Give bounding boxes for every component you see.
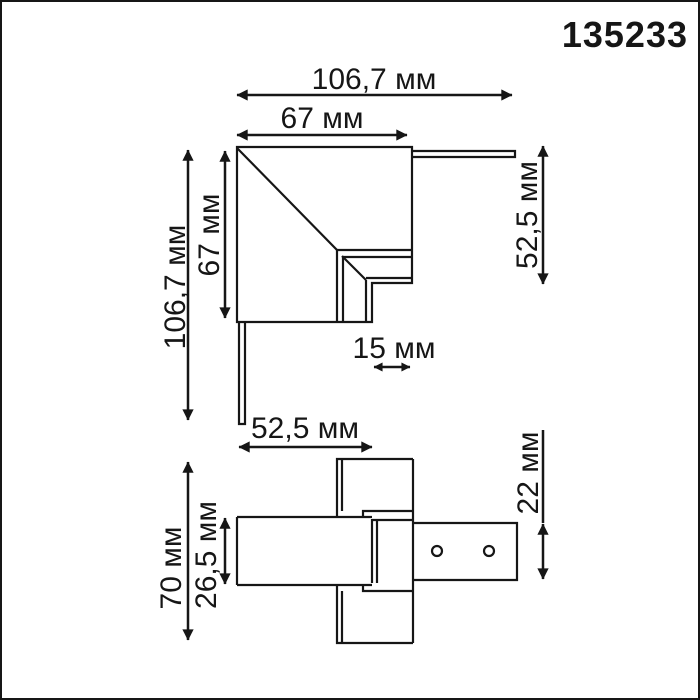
dim-label: 67 мм bbox=[281, 102, 364, 135]
track-stub-bottom bbox=[239, 322, 245, 424]
dim-label: 106,7 мм bbox=[312, 63, 437, 96]
dim-body-thickness: 26,5 мм bbox=[190, 501, 225, 609]
dim-body-width: 67 мм bbox=[237, 102, 407, 135]
bottom-tab-outline bbox=[337, 585, 413, 643]
top-view: 106,7 мм 67 мм 106,7 мм 67 мм 52,5 мм bbox=[159, 63, 544, 447]
dim-label: 26,5 мм bbox=[190, 501, 223, 609]
dim-label: 106,7 мм bbox=[159, 225, 192, 350]
dim-body-height: 67 мм bbox=[193, 151, 226, 318]
dim-label: 70 мм bbox=[155, 527, 188, 610]
dim-notch: 15 мм bbox=[353, 332, 436, 367]
dim-label: 52,5 мм bbox=[511, 161, 544, 269]
dim-bottom-arm: 52,5 мм bbox=[239, 412, 372, 447]
dim-label: 22 мм bbox=[512, 432, 545, 515]
miter-line bbox=[237, 148, 337, 250]
dim-total-height: 106,7 мм bbox=[159, 150, 192, 420]
dim-right-arm: 52,5 мм bbox=[511, 146, 544, 284]
technical-drawing: 135233 106,7 мм bbox=[0, 0, 700, 700]
adapter-plate bbox=[413, 523, 517, 580]
dim-label: 15 мм bbox=[353, 332, 436, 365]
top-tab-outline bbox=[337, 459, 413, 517]
dim-side-total-height: 70 мм bbox=[155, 462, 188, 640]
screw-hole-2 bbox=[484, 546, 494, 556]
track-stub-right bbox=[412, 151, 515, 157]
dim-label: 52,5 мм bbox=[251, 412, 359, 445]
side-view: 70 мм 26,5 мм 22 мм bbox=[155, 430, 545, 643]
miter-line-inner bbox=[342, 256, 366, 280]
drawing-page: 135233 106,7 мм bbox=[0, 0, 700, 700]
part-number: 135233 bbox=[562, 14, 688, 55]
dim-total-width: 106,7 мм bbox=[237, 63, 512, 96]
screw-hole-1 bbox=[432, 546, 442, 556]
dim-label: 67 мм bbox=[193, 194, 226, 277]
